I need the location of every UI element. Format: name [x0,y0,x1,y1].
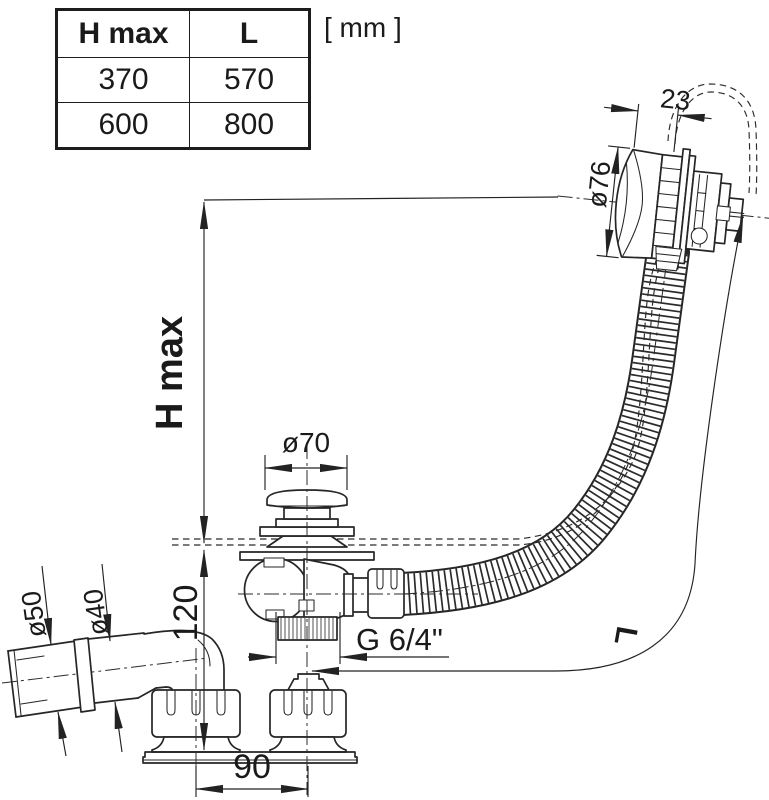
clip-tab-top [264,558,284,567]
hose-transition [654,247,682,272]
dim-label-hmax: H max [149,316,191,430]
dim-label-90: 90 [233,748,271,786]
dim-label-40: ø40 [78,587,114,637]
dim-label-50: ø50 [16,589,52,639]
dim-label-L: L [608,624,644,648]
siphon-body-right [304,559,350,622]
dim-label-120: 120 [167,585,205,642]
dimensions: H max 120 90 ø70 G 6/4" L [16,197,743,797]
pipe-centerline [2,658,208,683]
drawing-canvas: 23 ø76 [0,0,769,800]
pipe-collar [74,638,95,712]
drain-assembly [240,490,404,752]
skirt-right [270,737,346,752]
dim-label-overflow-width: 23 [659,83,692,116]
technical-drawing-page: H max L 370 570 600 800 [ mm ] [0,0,769,800]
cable-clamp [716,206,730,221]
dim-label-thread: G 6/4" [356,622,443,657]
bottom-nut-right [270,690,346,737]
tailpiece-adapter [288,674,329,690]
dim-label-overflow-diameter: ø76 [582,160,617,209]
dim-label-70: ø70 [282,427,330,458]
